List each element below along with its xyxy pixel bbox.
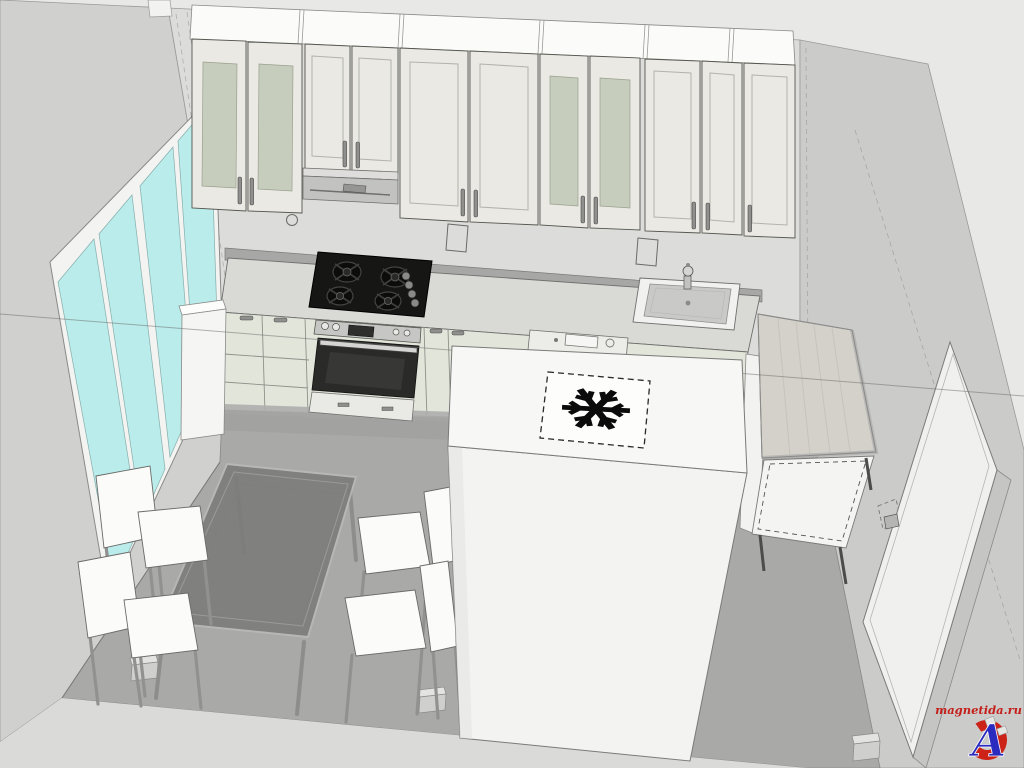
chair-seat [358,512,430,574]
gas-hob [309,252,432,317]
oven-display [348,325,374,337]
corner-pillar-top [148,0,172,17]
frosted-glass-panel [202,62,237,188]
dishwasher-button [554,338,558,342]
kitchen-render-stage: magnetida.ru A [0,0,1024,768]
door-handle [884,514,899,529]
chair-seat [345,590,426,656]
oven-knob [404,330,410,336]
sink-drain [686,301,691,306]
frosted-glass-panel [258,64,293,191]
refrigerator [448,346,747,761]
kitchen-3d-scene: magnetida.ru A [0,0,1024,768]
drawer-handle [338,403,349,407]
frosted-glass-panel [600,78,630,208]
chair-seat [138,506,208,568]
drawer-handle [382,407,393,411]
chair-seat [124,593,198,658]
watermark-logo: A [966,716,1008,767]
wall-cabinets [190,5,795,238]
hob-surface [309,252,432,317]
oven-knob [393,329,399,335]
oven [309,320,421,421]
oven-knob [333,324,340,331]
oven-knob [322,323,329,330]
logo-letter: A [968,716,1006,767]
range-hood [303,168,398,204]
watermark-text: magnetida.ru [935,703,1022,717]
frosted-glass-panel [550,76,578,206]
radiator-unit [179,300,226,440]
